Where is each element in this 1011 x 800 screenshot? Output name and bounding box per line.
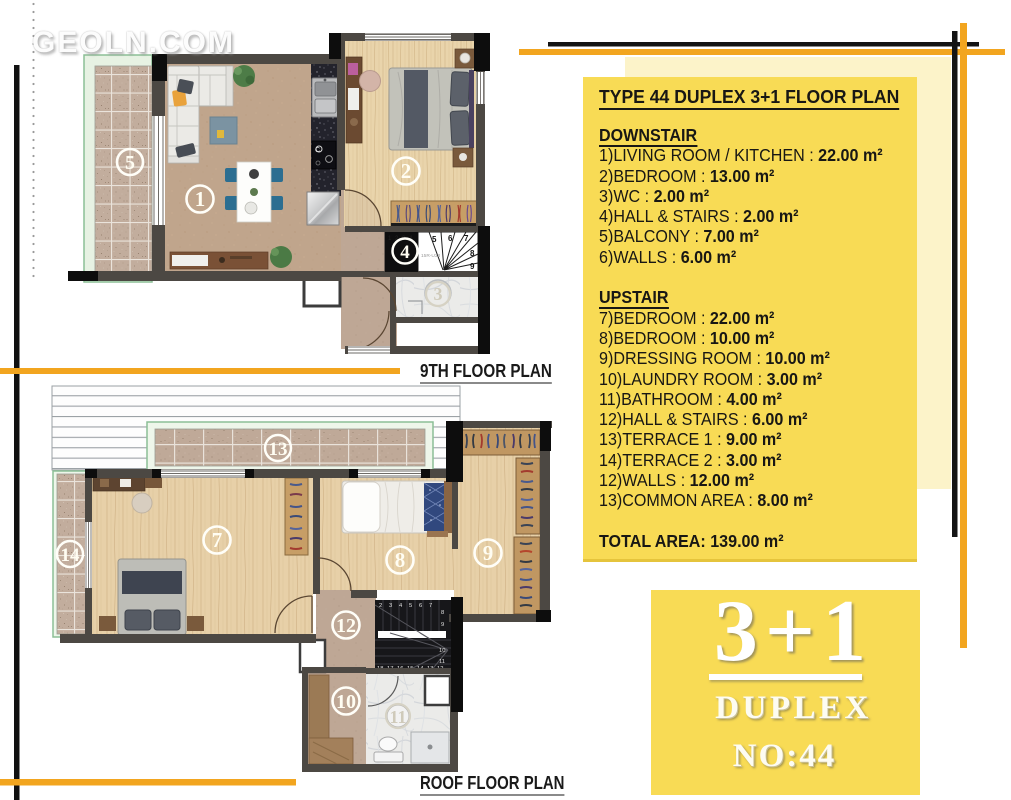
svg-text:13: 13 [269, 439, 288, 460]
svg-text:5: 5 [409, 603, 412, 609]
svg-text:3: 3 [389, 603, 392, 609]
svg-text:12: 12 [336, 615, 356, 637]
svg-text:2: 2 [379, 603, 382, 609]
svg-text:11: 11 [439, 659, 445, 665]
svg-text:8: 8 [441, 610, 444, 616]
svg-text:8: 8 [395, 548, 406, 572]
svg-text:2: 2 [401, 159, 412, 183]
svg-text:7: 7 [212, 528, 223, 552]
svg-text:7: 7 [464, 234, 469, 243]
svg-text:1: 1 [195, 187, 206, 211]
svg-text:6: 6 [448, 234, 453, 243]
svg-text:3: 3 [434, 284, 443, 304]
svg-text:9: 9 [470, 262, 475, 271]
svg-text:15R-U33: 15R-U33 [421, 253, 441, 259]
svg-text:9: 9 [483, 541, 494, 565]
svg-text:5: 5 [432, 235, 437, 244]
svg-text:11: 11 [389, 707, 406, 727]
svg-text:9: 9 [441, 622, 444, 628]
svg-text:5: 5 [125, 152, 135, 174]
svg-text:10: 10 [439, 648, 445, 654]
svg-text:10: 10 [336, 691, 356, 713]
svg-text:C: C [315, 147, 320, 154]
svg-text:7: 7 [429, 603, 432, 609]
svg-text:4: 4 [400, 242, 410, 263]
svg-text:6: 6 [419, 603, 422, 609]
svg-text:14: 14 [61, 545, 81, 566]
svg-text:8: 8 [470, 249, 475, 258]
